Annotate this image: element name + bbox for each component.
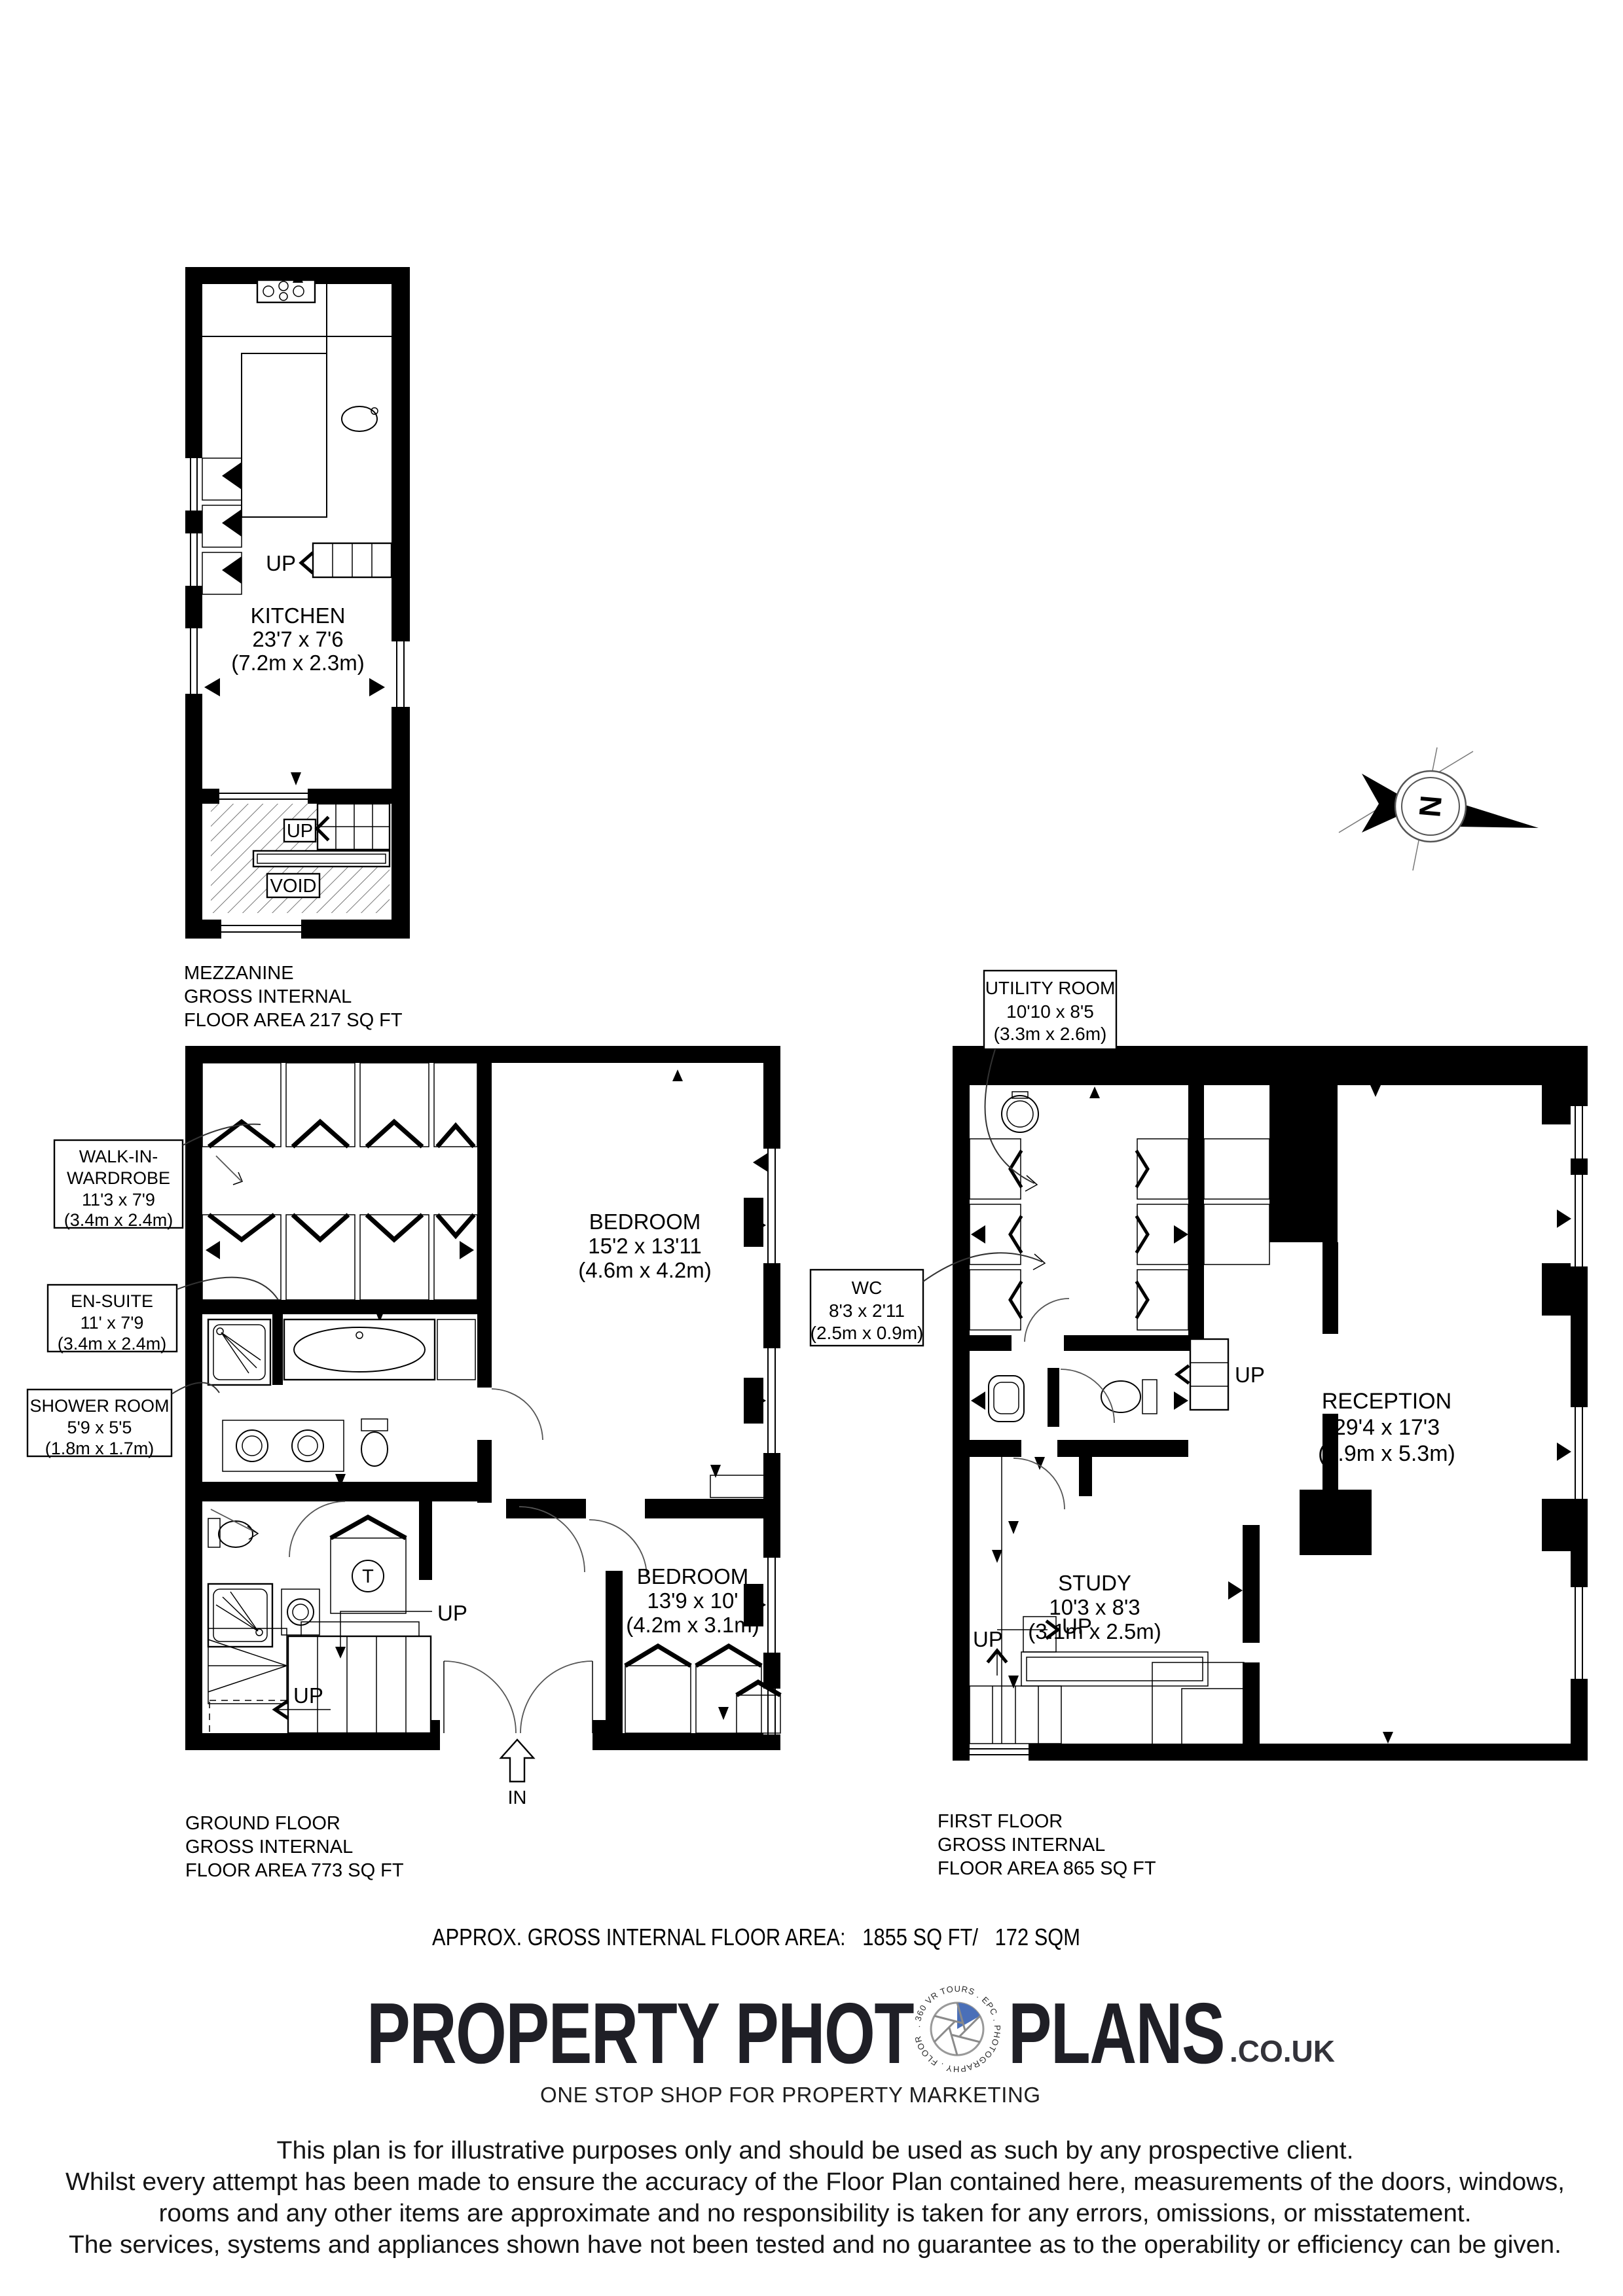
wardrobe-callout-dims: 11'3 x 7'9 [82,1190,155,1210]
entrance [444,1661,593,1782]
void-label: VOID [270,876,317,897]
reception-dims-label: 29'4 x 17'3 [1334,1415,1440,1440]
entrance-in-label: IN [508,1787,527,1808]
wardrobe-callout-line1: WALK-IN- [79,1147,158,1166]
aperture-icon: . 360 VR TOURS . EPC . PHOTOGRAPHY . FLO… [0,0,1002,2074]
window-arrow-icon [204,678,220,696]
bedroom1-dims-label: 15'2 x 13'11 [588,1234,701,1258]
up-label-ground-2: UP [293,1683,323,1708]
kitchen-dims-label: 23'7 x 7'6 [252,627,343,651]
bedroom2-dims-label: 13'9 x 10' [647,1588,738,1613]
logo-wordmark-right: PLANS [1008,1985,1224,2081]
mezzanine-title-line3: FLOOR AREA 217 SQ FT [184,1010,403,1031]
wardrobe-callout-line2: WARDROBE [67,1168,170,1188]
kitchen-room-label: KITCHEN [251,603,346,628]
floorplan-page: UP KITCHEN 23'7 x 7'6 (7.2m x 2.3m) UP V… [0,0,1623,2296]
up-label-first-1: UP [1235,1363,1265,1387]
tank-label: T [362,1566,374,1587]
first-walls [953,1046,1588,1761]
window-arrow-icon [369,678,385,696]
shower-callout-name: SHOWER ROOM [30,1396,170,1416]
mezzanine-plan: UP KITCHEN 23'7 x 7'6 (7.2m x 2.3m) UP V… [184,267,410,1031]
wardrobe-callout-metric: (3.4m x 2.4m) [64,1210,173,1230]
aperture-ring-text: . 360 VR TOURS . EPC . PHOTOGRAPHY . FLO… [0,0,1002,2074]
up-label-ground-1: UP [437,1601,467,1625]
reception-metric-label: (8.9m x 5.3m) [1318,1441,1455,1466]
mezzanine-title-line1: MEZZANINE [184,963,294,984]
up-label-void: UP [287,821,313,842]
bedroom2-room-label: BEDROOM [637,1564,749,1588]
logo-wordmark-left: PROPERTY PHOT [367,1985,914,2081]
disclaimer-line4: The services, systems and appliances sho… [69,2231,1561,2259]
ground-title-line1: GROUND FLOOR [185,1813,340,1834]
floorplan-canvas: UP KITCHEN 23'7 x 7'6 (7.2m x 2.3m) UP V… [0,0,1623,2296]
utility-callout-name: UTILITY ROOM [985,978,1116,998]
compass-north-label: N [1413,794,1449,819]
utility-callout-metric: (3.3m x 2.6m) [994,1024,1107,1044]
bedroom1-metric-label: (4.6m x 4.2m) [578,1258,712,1282]
wardrobe-callout: WALK-IN- WARDROBE 11'3 x 7'9 (3.4m x 2.4… [54,1124,261,1230]
total-area-summary: APPROX. GROSS INTERNAL FLOOR AREA: 1855 … [432,1924,1080,1950]
shower-callout-dims: 5'9 x 5'5 [67,1418,132,1437]
compass-icon: N [1339,747,1539,870]
utility-room-fixtures [970,1086,1269,1342]
bedroom2-metric-label: (4.2m x 3.1m) [626,1613,759,1637]
entrance-arrow-icon [501,1740,534,1782]
mezzanine-stair-upper [301,543,392,577]
up-label-first-2: UP [973,1627,1003,1651]
logo-domain-suffix: .CO.UK [1230,2034,1335,2068]
disclaimer-line3: rooms and any other items are approximat… [159,2200,1472,2227]
wc-callout-dims: 8'3 x 2'11 [829,1300,905,1321]
first-title: FIRST FLOOR GROSS INTERNAL FLOOR AREA 86… [938,1811,1156,1879]
tank-closet [331,1517,406,1613]
ensuite-callout-dims: 11' x 7'9 [81,1313,144,1333]
mezzanine-title: MEZZANINE GROSS INTERNAL FLOOR AREA 217 … [184,963,403,1031]
study-room-label: STUDY [1058,1571,1131,1595]
ground-floor-plan: BEDROOM 15'2 x 13'11 (4.6m x 4.2m) [27,1046,780,1881]
disclaimer-line1: This plan is for illustrative purposes o… [277,2137,1354,2164]
disclaimer-line2: Whilst every attempt has been made to en… [65,2168,1565,2196]
reception-room-label: RECEPTION [1322,1389,1451,1414]
kitchen-metric-label: (7.2m x 2.3m) [231,651,365,675]
ensuite-callout-metric: (3.4m x 2.4m) [58,1334,167,1354]
ensuite-callout-name: EN-SUITE [71,1291,153,1311]
reception: RECEPTION 29'4 x 17'3 (8.9m x 5.3m) [1318,1389,1455,1466]
mezzanine-title-line2: GROSS INTERNAL [184,986,352,1007]
logo-tagline: ONE STOP SHOP FOR PROPERTY MARKETING [540,2083,1044,2107]
up-label-kitchen: UP [266,551,296,575]
shower-callout-metric: (1.8m x 1.7m) [45,1439,155,1458]
wc-callout-metric: (2.5m x 0.9m) [811,1323,924,1343]
hob-icon [257,280,315,302]
ground-title-line2: GROSS INTERNAL [185,1837,353,1857]
utility-callout-dims: 10'10 x 8'5 [1006,1001,1094,1022]
up-label-first-3: UP [1062,1614,1092,1638]
first-title-line2: GROSS INTERNAL [938,1835,1105,1856]
bedroom1-room-label: BEDROOM [589,1210,701,1234]
shower-room-fixtures [208,1501,345,1647]
kitchen-cabinets [202,458,242,594]
first-title-line1: FIRST FLOOR [938,1811,1063,1832]
first-title-line3: FLOOR AREA 865 SQ FT [938,1858,1156,1879]
ensuite-fixtures [208,1314,475,1487]
sink-icon [342,406,378,431]
disclaimer: This plan is for illustrative purposes o… [65,2137,1565,2259]
ground-title: GROUND FLOOR GROSS INTERNAL FLOOR AREA 7… [185,1813,404,1881]
ground-walls [185,1046,780,1750]
window-arrow-icon [291,772,301,785]
kitchen-counter [202,284,392,517]
first-floor-plan: UP RECEPTION 29'4 x 17'3 (8.9m x 5.3m) S… [811,971,1588,1879]
walk-in-wardrobe-units [202,1063,477,1322]
wc-callout-name: WC [852,1278,883,1298]
ground-title-line3: FLOOR AREA 773 SQ FT [185,1860,404,1881]
